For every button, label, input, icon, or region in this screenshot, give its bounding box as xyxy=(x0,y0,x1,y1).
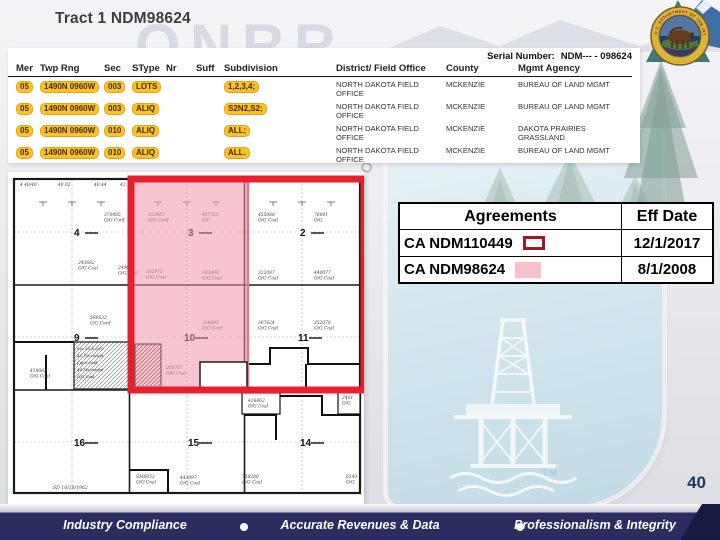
lease-header-0: Mer xyxy=(16,63,40,74)
lease-header-7: District/ Field Office xyxy=(336,63,446,74)
cell-subdivision: ALL; xyxy=(224,125,336,137)
serial-number-value: NDM--- - 098624 xyxy=(561,51,632,62)
lease-table-row: 051490N 0960W003ALIQS2N2,S2;NORTH DAKOTA… xyxy=(8,103,632,123)
agreement-eff-date: 8/1/2008 xyxy=(622,256,712,282)
lease-number-label: 243682 xyxy=(77,261,95,266)
highlighted-value: 05 xyxy=(16,125,33,137)
lease-number-label: SM6053 xyxy=(136,475,155,480)
footer-divider-band xyxy=(0,504,720,512)
highlighted-value: ALL. xyxy=(224,147,250,159)
highlighted-value: 1490N 0960W xyxy=(40,103,99,115)
lease-type-label: O/G Conf xyxy=(104,218,126,223)
cell-mer: 05 xyxy=(16,103,40,115)
lease-table-row: 051490N 0960W003LOTS1,2,3,4;NORTH DAKOTA… xyxy=(8,81,632,101)
cell-twp_rng: 1490N 0960W xyxy=(40,103,104,115)
plat-map-panel: 432910111615144 40/4040.0240.4441.113704… xyxy=(8,172,364,504)
section-number: 9 xyxy=(74,333,80,344)
highlighted-value: S2N2,S2; xyxy=(224,103,267,115)
page-number: 40 xyxy=(660,473,706,493)
cell-district: NORTH DAKOTA FIELD OFFICE xyxy=(336,81,446,99)
lease-type-label: O/G Coal xyxy=(242,480,263,485)
agreement-name-cell: CA NDM98624 xyxy=(400,256,622,282)
plat-note-line: AC l'ts except xyxy=(76,353,104,358)
cell-district: NORTH DAKOTA FIELD OFFICE xyxy=(336,125,446,143)
lease-type-label: O/G Coal xyxy=(30,374,51,379)
cell-mer: 05 xyxy=(16,147,40,159)
cell-agency: BUREAU OF LAND MGMT xyxy=(518,147,632,156)
highlighted-value: 05 xyxy=(16,103,33,115)
highlighted-value: 010 xyxy=(104,125,125,137)
cell-sec: 010 xyxy=(104,125,132,137)
cell-agency: DAKOTA PRAIRIES GRASSLAND xyxy=(518,125,632,143)
oil-derrick-icon xyxy=(448,316,578,504)
highlighted-value: ALIQ xyxy=(132,103,159,115)
lease-number-label: 599532 xyxy=(90,316,107,321)
cell-subdivision: ALL. xyxy=(224,147,336,159)
plat-note-line: Sec 30 X 2/12 xyxy=(77,346,104,351)
cell-district: NORTH DAKOTA FIELD OFFICE xyxy=(336,147,446,165)
cell-sec: 003 xyxy=(104,103,132,115)
lease-type-label: O/G Coal xyxy=(78,266,99,271)
cell-subdivision: 1,2,3,4; xyxy=(224,81,336,93)
trademark-text: TM xyxy=(543,468,558,478)
lease-number-label: 6540 xyxy=(346,475,357,480)
cell-twp_rng: 1490N 0960W xyxy=(40,147,104,159)
agreements-table: Agreements Eff Date CA NDM11044912/1/201… xyxy=(398,202,714,284)
lease-number-label: 76041 xyxy=(314,213,328,218)
highlighted-value: 05 xyxy=(16,81,33,93)
lease-header-3: SType xyxy=(132,63,166,74)
lease-header-1: Twp Rng xyxy=(40,63,104,74)
agreement-row: CA NDM986248/1/2008 xyxy=(400,256,712,282)
lease-type-label: O/G Coal xyxy=(314,276,335,281)
highlighted-value: 1490N 0960W xyxy=(40,81,99,93)
lease-type-label: O/G Coal xyxy=(258,218,279,223)
lease-table-header-row: MerTwp RngSecSTypeNrSuffSubdivisionDistr… xyxy=(8,63,632,77)
footer-bar: Industry Compliance Accurate Revenues & … xyxy=(0,512,720,540)
lease-type-label: O/G Coal xyxy=(314,326,335,331)
highlighted-value: 1490N 0960W xyxy=(40,147,99,159)
excluded-parcel-notch xyxy=(200,362,247,389)
lease-table-panel: Serial Number:NDM--- - 098624 MerTwp Rng… xyxy=(8,48,640,163)
highlighted-value: LOTS xyxy=(132,81,161,93)
plat-note-line: Cap't Coal xyxy=(77,360,98,365)
plat-survey-date: SD 10/18/1962 xyxy=(53,485,88,491)
cell-county: MCKENZIE xyxy=(446,125,518,134)
section-number: 14 xyxy=(300,438,312,449)
lease-type-label: O/G Coal xyxy=(258,276,279,281)
lease-number-label: 756280 xyxy=(242,475,259,480)
lease-type-label: O/G Coal xyxy=(180,481,201,486)
section-number: 4 xyxy=(74,228,80,239)
section-number: 15 xyxy=(188,438,200,449)
lease-table-row: 051490N 0960W010ALIQALL.NORTH DAKOTA FIE… xyxy=(8,147,632,167)
section-number: 16 xyxy=(74,438,86,449)
lease-header-6: Subdivision xyxy=(224,63,336,74)
pink-fill-swatch-icon xyxy=(515,262,541,278)
agreements-rows: CA NDM11044912/1/2017CA NDM986248/1/2008 xyxy=(400,230,712,282)
agreements-header-cell: Agreements xyxy=(400,204,622,230)
highlighted-value: 05 xyxy=(16,147,33,159)
cell-stype: ALIQ xyxy=(132,147,166,159)
footer-item-accurate-revenues: Accurate Revenues & Data xyxy=(235,518,485,532)
cell-stype: LOTS xyxy=(132,81,166,93)
eff-date-header-cell: Eff Date xyxy=(622,204,712,230)
lease-header-4: Nr xyxy=(166,63,196,74)
lease-type-label: O/G Conf xyxy=(90,321,112,326)
red-outline-swatch-icon xyxy=(523,236,545,250)
section-number: 11 xyxy=(298,333,309,344)
cell-stype: ALIQ xyxy=(132,125,166,137)
lease-header-2: Sec xyxy=(104,63,132,74)
lease-header-5: Suff xyxy=(196,63,224,74)
agreement-name: CA NDM98624 xyxy=(404,261,505,278)
cell-county: MCKENZIE xyxy=(446,147,518,156)
lease-number-label: 443097 xyxy=(179,476,197,481)
lease-type-label: O/G xyxy=(314,218,323,223)
plat-note-line: O/G Coal xyxy=(77,374,95,379)
cell-county: MCKENZIE xyxy=(446,81,518,90)
acreage-label: 40.44 xyxy=(93,183,107,188)
serial-number-label: Serial Number: xyxy=(487,51,555,62)
lease-table-row: 051490N 0960W010ALIQALL;NORTH DAKOTA FIE… xyxy=(8,125,632,145)
lease-header-9: Mgmt Agency xyxy=(518,63,632,74)
cell-twp_rng: 1490N 0960W xyxy=(40,81,104,93)
lease-number-label: 322087 xyxy=(258,271,275,276)
highlighted-value: ALIQ xyxy=(132,125,159,137)
agreement-eff-date: 12/1/2017 xyxy=(622,230,712,256)
plat-map: 432910111615144 40/4040.0240.4441.113704… xyxy=(8,172,364,504)
plat-note-line: AS l'ts except xyxy=(76,367,104,372)
agreement-name: CA NDM110449 xyxy=(404,235,513,252)
cell-sec: 003 xyxy=(104,81,132,93)
cell-sec: 010 xyxy=(104,147,132,159)
cell-mer: 05 xyxy=(16,81,40,93)
acreage-label: 4 40/40 xyxy=(19,183,37,188)
lease-type-label: O/G xyxy=(346,480,355,485)
cell-mer: 05 xyxy=(16,125,40,137)
cell-stype: ALIQ xyxy=(132,103,166,115)
section-number: 2 xyxy=(300,228,306,239)
highlighted-value: 1,2,3,4; xyxy=(224,81,259,93)
lease-number-label: 419062 xyxy=(29,369,47,374)
slide: ONRR ATURAL RESOURC xyxy=(0,0,720,540)
lease-number-label: 307624 xyxy=(258,321,275,326)
highlighted-value: 1490N 0960W xyxy=(40,125,99,137)
lease-number-label: 455088 xyxy=(257,213,275,218)
agreement-row: CA NDM11044912/1/2017 xyxy=(400,230,712,256)
lease-type-label: O/G xyxy=(342,401,351,406)
acreage-label: 40.02 xyxy=(57,183,71,188)
lease-type-label: O/G Coal xyxy=(248,404,269,409)
slide-title: Tract 1 NDM98624 xyxy=(55,10,191,28)
cell-county: MCKENZIE xyxy=(446,103,518,112)
lease-header-8: County xyxy=(446,63,518,74)
lease-number-label: 2401 xyxy=(341,396,353,401)
cell-twp_rng: 1490N 0960W xyxy=(40,125,104,137)
agreement-name-cell: CA NDM110449 xyxy=(400,230,622,256)
lease-type-label: O/G Coal xyxy=(136,480,157,485)
lease-number-label: 416462 xyxy=(247,399,265,404)
pink-hatched-parcel xyxy=(135,344,161,387)
lease-type-label: O/G Coal xyxy=(258,326,279,331)
serial-number: Serial Number:NDM--- - 098624 xyxy=(487,51,632,62)
highlighted-value: ALIQ xyxy=(132,147,159,159)
footer-item-industry-compliance: Industry Compliance xyxy=(20,518,230,532)
cell-agency: BUREAU OF LAND MGMT xyxy=(518,81,632,90)
lease-table-rows: 051490N 0960W003LOTS1,2,3,4;NORTH DAKOTA… xyxy=(8,81,632,169)
lease-number-label: 352078 xyxy=(314,321,331,326)
cell-agency: BUREAU OF LAND MGMT xyxy=(518,103,632,112)
agreements-header-row: Agreements Eff Date xyxy=(400,204,712,230)
lease-number-label: 370485 xyxy=(104,213,121,218)
us-department-of-interior-seal: U.S. DEPARTMENT OF THE INTERIOR MARCH 3,… xyxy=(650,6,710,66)
footer-item-professionalism: Professionalism & Integrity xyxy=(480,518,710,532)
cell-subdivision: S2N2,S2; xyxy=(224,103,336,115)
cell-district: NORTH DAKOTA FIELD OFFICE xyxy=(336,103,446,121)
highlighted-value: 003 xyxy=(104,103,125,115)
highlighted-value: 010 xyxy=(104,147,125,159)
lease-number-label: 440077 xyxy=(313,271,331,276)
highlighted-value: 003 xyxy=(104,81,125,93)
highlighted-value: ALL; xyxy=(224,125,250,137)
